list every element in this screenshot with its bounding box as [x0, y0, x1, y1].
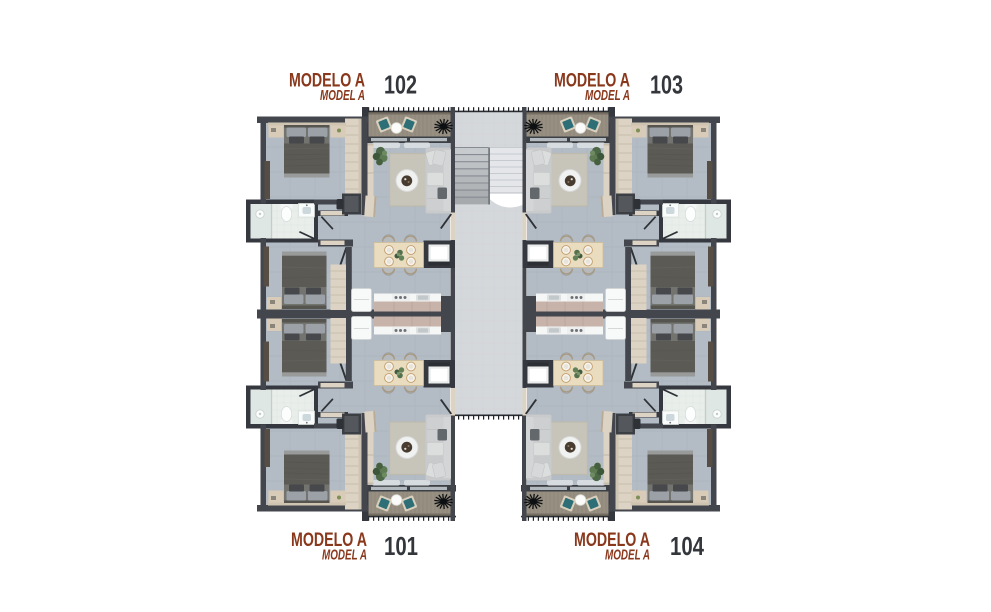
svg-text:MODEL A: MODEL A: [322, 547, 367, 564]
svg-text:MODEL A: MODEL A: [605, 547, 650, 564]
svg-text:101: 101: [384, 531, 418, 561]
svg-text:103: 103: [650, 70, 683, 100]
svg-text:104: 104: [670, 531, 704, 561]
svg-text:MODEL A: MODEL A: [320, 87, 365, 104]
svg-text:MODEL A: MODEL A: [585, 87, 630, 104]
svg-text:102: 102: [384, 70, 417, 100]
